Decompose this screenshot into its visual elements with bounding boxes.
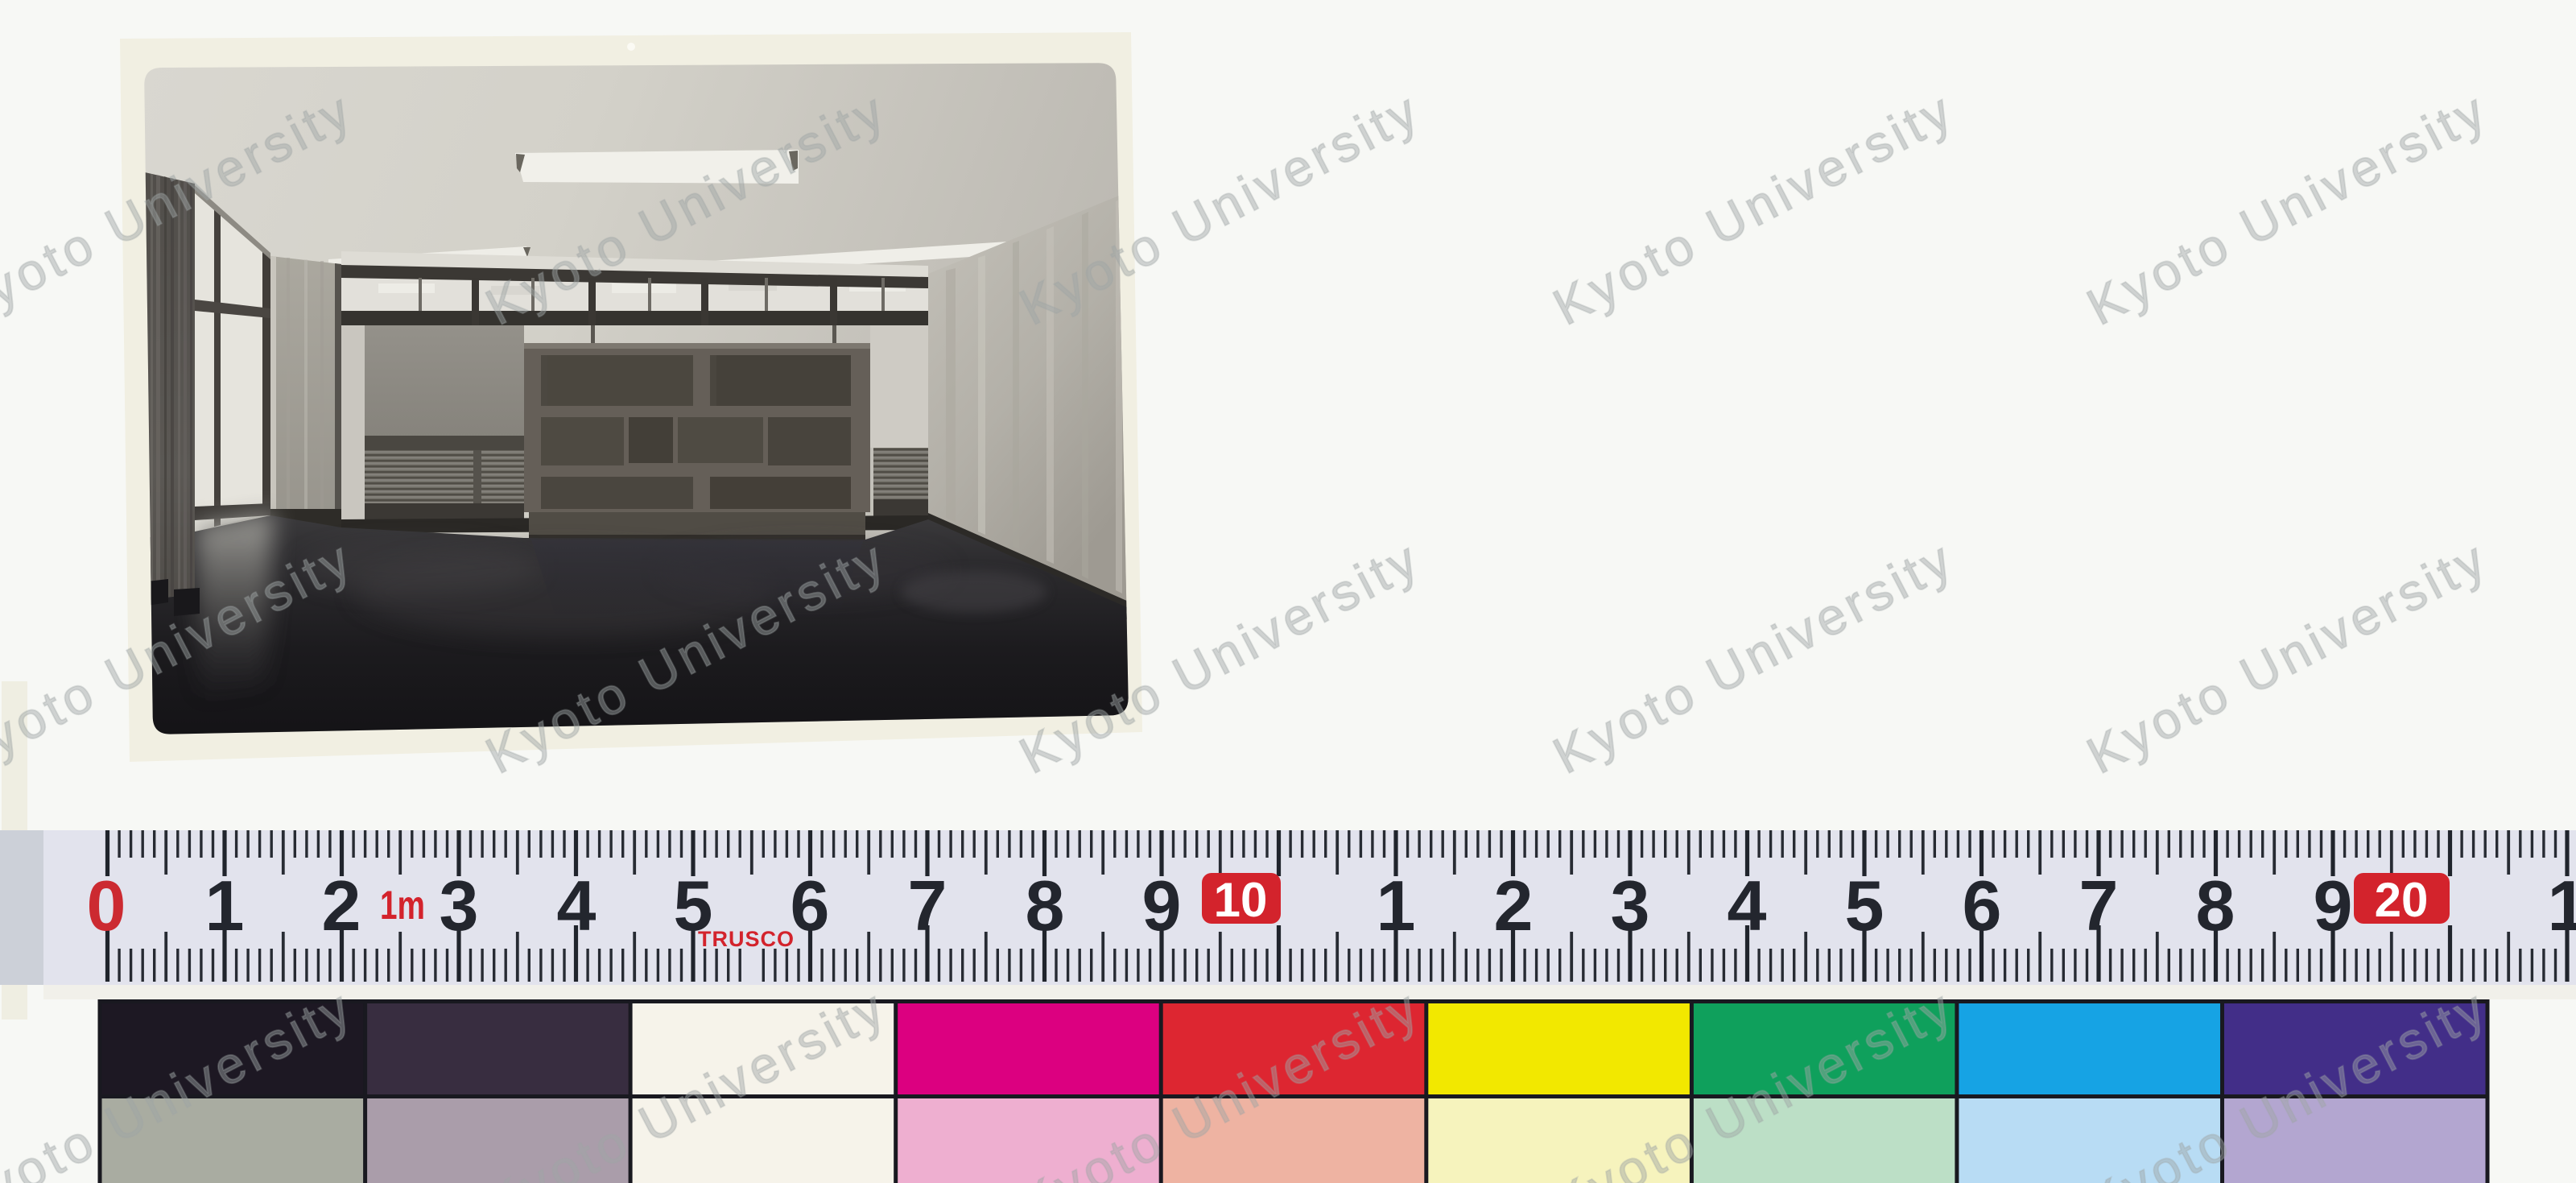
svg-text:7: 7 bbox=[2079, 866, 2119, 945]
svg-text:3: 3 bbox=[1611, 866, 1650, 945]
svg-text:5: 5 bbox=[1845, 866, 1885, 945]
svg-text:9: 9 bbox=[2314, 866, 2353, 945]
svg-text:TRUSCO: TRUSCO bbox=[698, 927, 795, 951]
svg-text:3: 3 bbox=[440, 866, 479, 945]
svg-text:9: 9 bbox=[1142, 866, 1182, 945]
svg-text:2: 2 bbox=[1494, 866, 1534, 945]
svg-text:20: 20 bbox=[2375, 873, 2429, 927]
svg-text:2: 2 bbox=[322, 866, 361, 945]
svg-text:4: 4 bbox=[557, 866, 597, 945]
svg-text:10: 10 bbox=[1214, 873, 1268, 927]
svg-text:1: 1 bbox=[205, 866, 245, 945]
svg-text:8: 8 bbox=[2196, 866, 2235, 945]
svg-text:0: 0 bbox=[87, 866, 126, 945]
svg-text:1: 1 bbox=[1377, 866, 1416, 945]
svg-text:1m: 1m bbox=[380, 883, 425, 928]
svg-text:4: 4 bbox=[1728, 866, 1767, 945]
svg-text:1: 1 bbox=[2548, 866, 2576, 945]
svg-text:7: 7 bbox=[908, 866, 947, 945]
svg-text:6: 6 bbox=[1963, 866, 2002, 945]
svg-text:8: 8 bbox=[1026, 866, 1065, 945]
svg-text:6: 6 bbox=[791, 866, 830, 945]
